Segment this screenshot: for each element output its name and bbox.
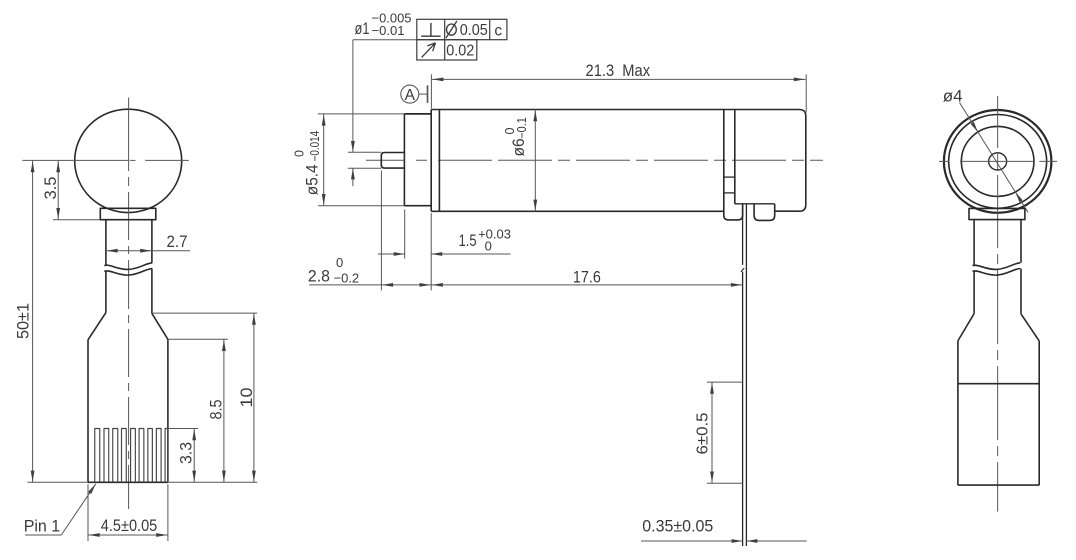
svg-text:−0.01: −0.01	[372, 23, 405, 38]
svg-text:2.7: 2.7	[167, 232, 188, 251]
svg-text:3.5: 3.5	[41, 177, 60, 200]
svg-text:0.05: 0.05	[460, 22, 488, 39]
svg-text:ø5.4: ø5.4	[303, 164, 322, 195]
svg-text:50±1: 50±1	[13, 303, 32, 339]
svg-text:10: 10	[237, 388, 256, 408]
svg-text:ø6: ø6	[509, 138, 528, 156]
svg-text:0: 0	[292, 150, 306, 157]
svg-text:c: c	[494, 22, 502, 39]
svg-text:Pin 1: Pin 1	[24, 516, 61, 535]
svg-text:A: A	[405, 87, 416, 104]
svg-text:0.02: 0.02	[446, 42, 474, 59]
svg-text:0: 0	[336, 255, 343, 270]
svg-text:8.5: 8.5	[206, 400, 225, 420]
svg-text:−0.1: −0.1	[515, 117, 529, 139]
svg-text:21.3 Max: 21.3 Max	[586, 61, 651, 80]
svg-text:2.8: 2.8	[308, 267, 330, 286]
svg-text:17.6: 17.6	[573, 268, 601, 287]
svg-text:4.5±0.05: 4.5±0.05	[101, 516, 158, 535]
svg-text:0: 0	[485, 238, 492, 253]
svg-text:−0.014: −0.014	[308, 131, 322, 162]
svg-text:ø1: ø1	[355, 20, 370, 38]
svg-text:ø4: ø4	[943, 87, 963, 106]
svg-text:−0.2: −0.2	[334, 270, 360, 285]
svg-text:0.35±0.05: 0.35±0.05	[642, 517, 713, 536]
svg-text:3.3: 3.3	[176, 442, 195, 464]
svg-text:+0.03: +0.03	[478, 226, 511, 241]
svg-text:1.5: 1.5	[459, 231, 477, 250]
svg-text:6±0.5: 6±0.5	[694, 412, 711, 454]
